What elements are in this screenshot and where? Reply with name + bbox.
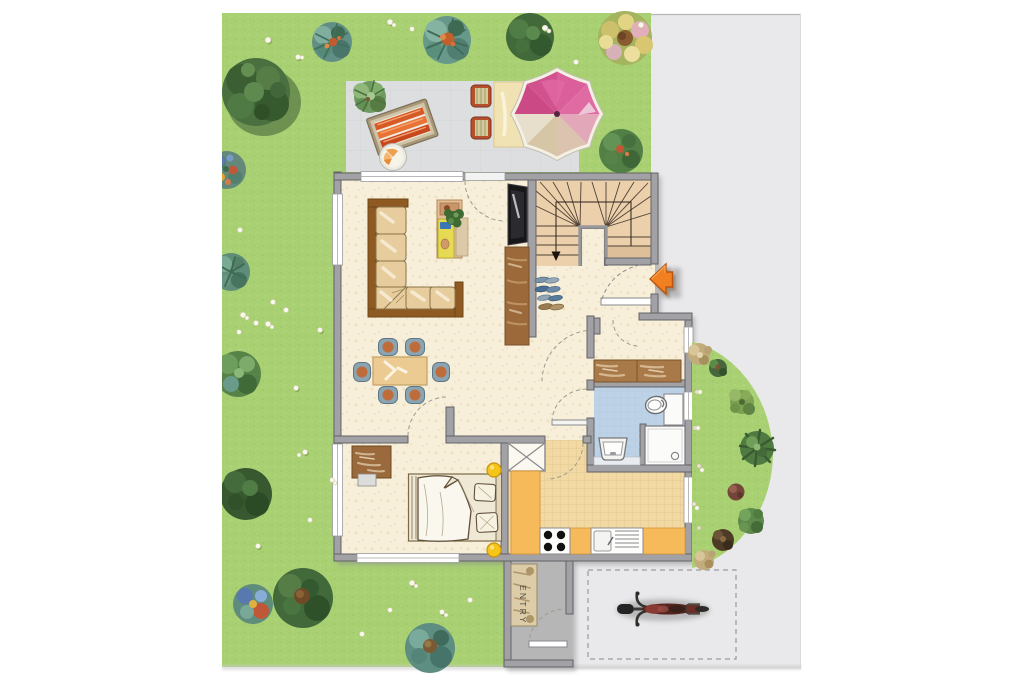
- svg-text:ENTRY: ENTRY: [518, 585, 528, 625]
